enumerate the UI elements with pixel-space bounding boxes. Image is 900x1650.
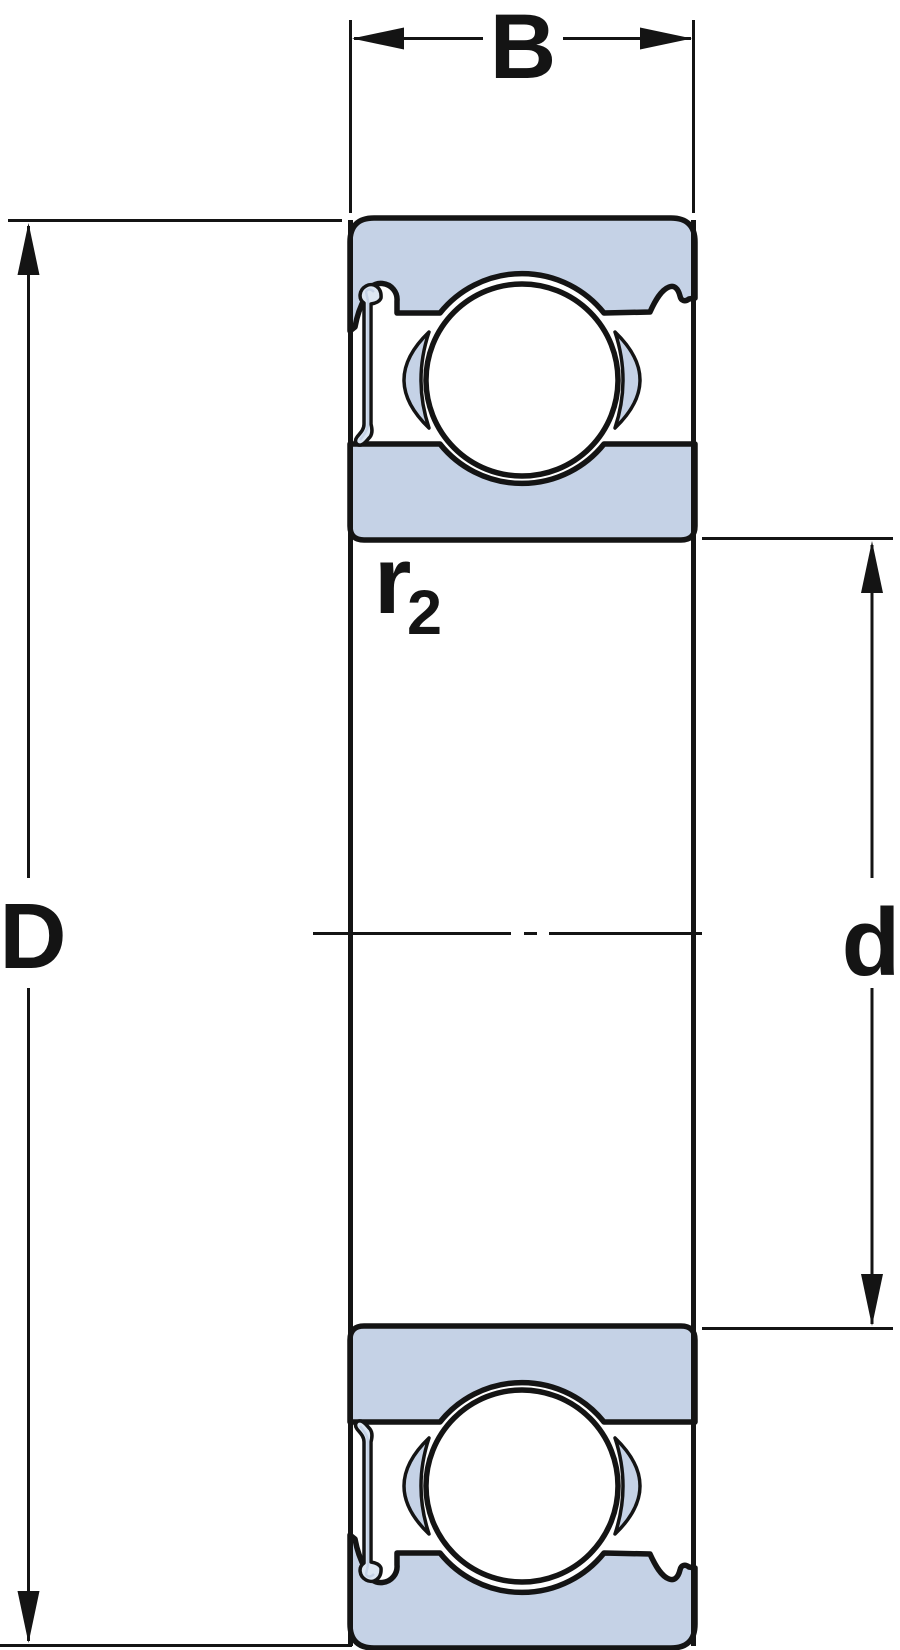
arrowhead-d-down [861,1274,883,1326]
bearing-diagram: B D d r 2 [0,0,900,1650]
arrowhead-b-right [640,28,692,50]
label-fillet-radius-r2: r 2 [374,527,442,648]
dimension-B: B [351,0,694,213]
arrowhead-d-up [861,541,883,593]
label-outer-diameter-D: D [0,884,67,988]
label-r-subscript: 2 [407,578,442,648]
arrowhead-D-down [18,1591,40,1643]
dimension-d: d [702,539,900,1329]
bearing-section-top [350,218,695,540]
arrowhead-D-up [18,223,40,275]
arrowhead-b-left [352,28,404,50]
label-width-B: B [490,0,556,98]
bearing-section-bottom [350,1326,695,1648]
dimension-D: D [0,221,352,1646]
label-bore-diameter-d: d [842,889,900,996]
label-r-base: r [374,527,411,634]
bearing-diagram-page: B D d r 2 [0,0,900,1650]
